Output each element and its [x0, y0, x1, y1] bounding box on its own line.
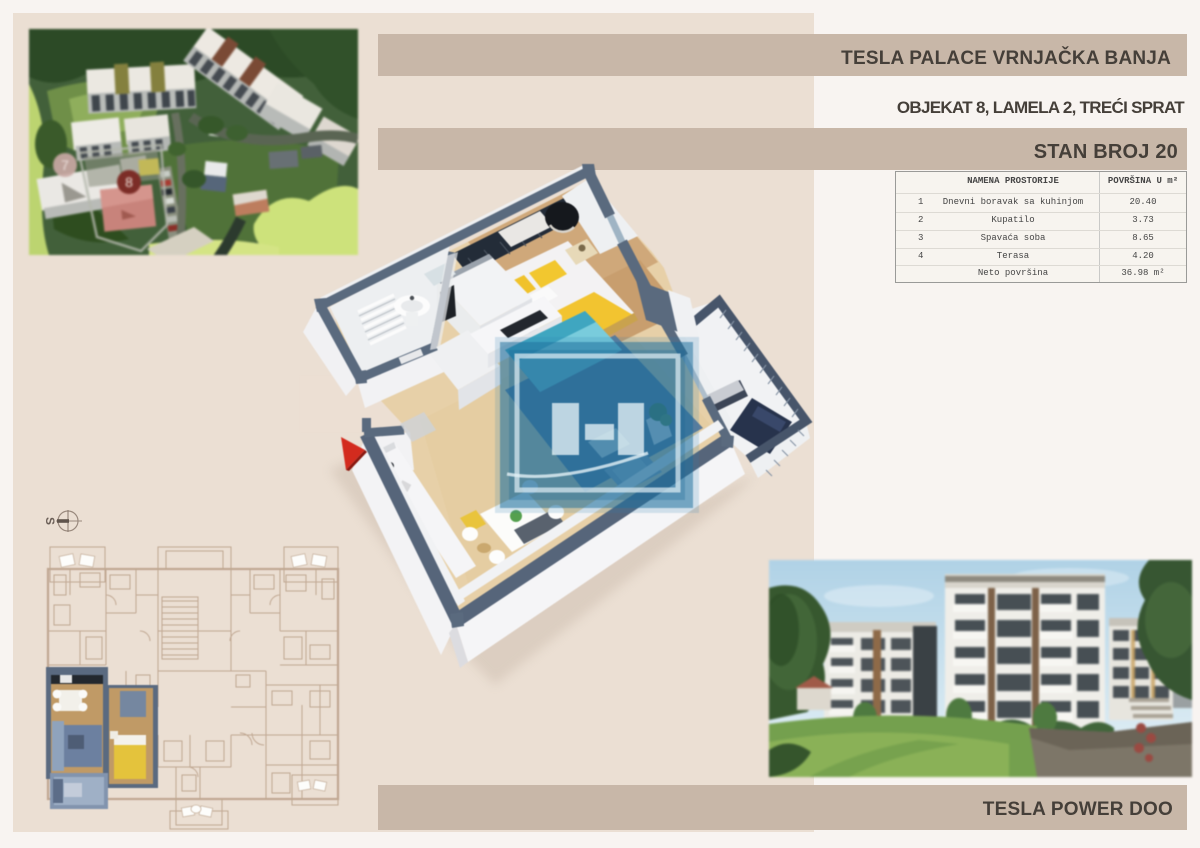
svg-text:7: 7 — [61, 157, 69, 173]
svg-text:8: 8 — [125, 174, 133, 190]
svg-text:S: S — [43, 517, 57, 525]
